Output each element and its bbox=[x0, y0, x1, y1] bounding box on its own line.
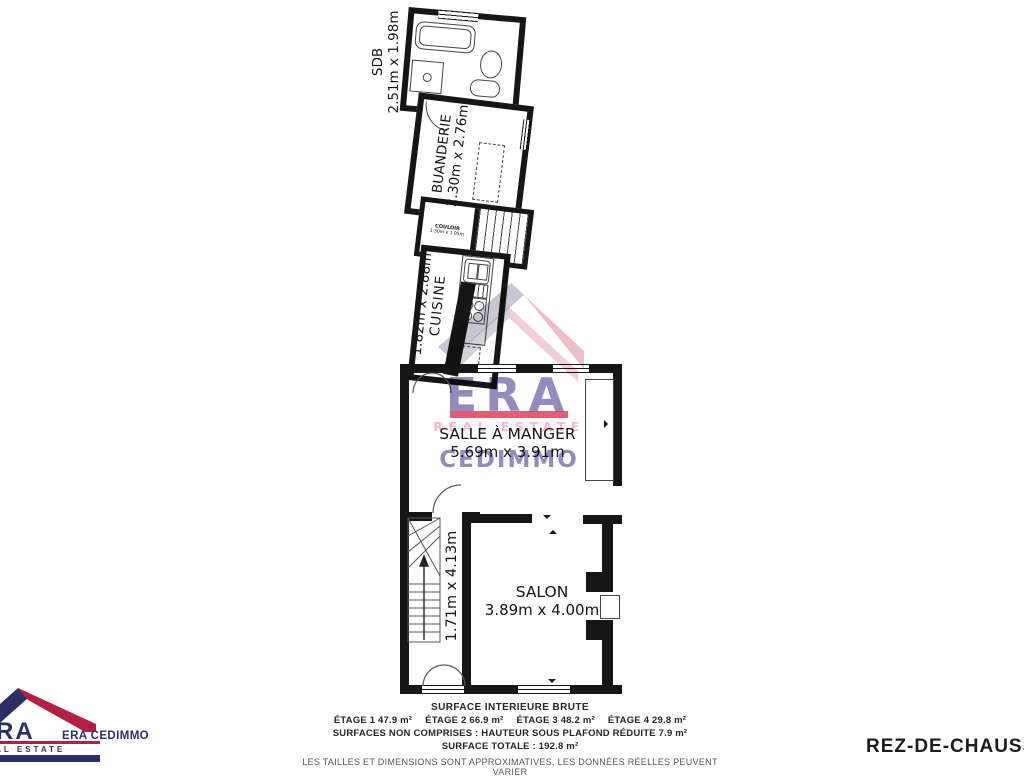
watermark-real-estate: REAL ESTATE bbox=[409, 419, 609, 434]
room-dims: 2.51m x 1.98m bbox=[387, 0, 403, 132]
room-dims: 1.71m x 4.13m bbox=[444, 521, 461, 651]
floorplan-page: { "floor_label": "REZ-DE-CHAUSSÉE", "roo… bbox=[0, 0, 1024, 768]
room-name: SALON bbox=[452, 584, 632, 602]
roof-left bbox=[438, 283, 524, 359]
watermark-bar bbox=[450, 411, 568, 418]
room-name: SDB bbox=[371, 0, 387, 132]
room-label-salon: SALON 3.89m x 4.00m bbox=[452, 584, 632, 619]
watermark-cedimmo: CEDIMMO bbox=[409, 447, 609, 473]
door-arc bbox=[423, 665, 444, 686]
door-arc bbox=[444, 665, 465, 686]
door-arc bbox=[433, 485, 461, 513]
room-dims: 3.89m x 4.00m bbox=[452, 602, 632, 619]
room-label-escalier: 1.71m x 4.13m bbox=[444, 521, 464, 651]
room-label-sdb: SDB 2.51m x 1.98m bbox=[371, 0, 407, 132]
